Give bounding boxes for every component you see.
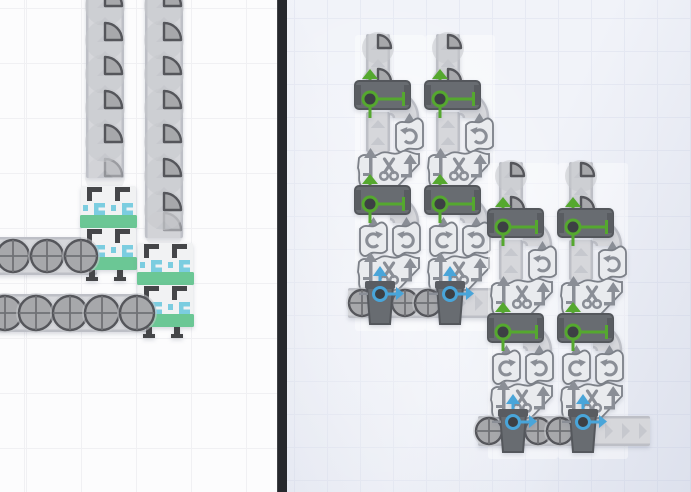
shape-item-quarter	[143, 189, 185, 231]
output-port-machine[interactable]	[560, 392, 610, 456]
quarter-shape	[164, 159, 181, 176]
output-port-machine[interactable]	[357, 264, 407, 328]
green-dial-icon	[433, 197, 447, 211]
quarter-shape	[105, 125, 122, 142]
blue-dial-icon	[577, 416, 590, 429]
shape-item-quarter	[564, 159, 598, 193]
quarter-shape	[105, 23, 122, 40]
green-dial-icon	[496, 220, 510, 234]
green-dial-icon	[566, 325, 580, 339]
belt-reader-machine[interactable]	[424, 67, 482, 121]
shape-item-circle	[116, 292, 158, 334]
game-screenshot	[0, 0, 691, 492]
quarter-shape	[164, 91, 181, 108]
quarter-shape	[164, 193, 181, 210]
blue-dial-icon	[507, 416, 520, 429]
shape-item-quarter	[361, 31, 395, 65]
shape-item-quarter	[494, 159, 528, 193]
quarter-shape	[164, 125, 181, 142]
output-port-machine[interactable]	[490, 392, 540, 456]
output-port-machine[interactable]	[427, 264, 477, 328]
blue-dial-icon	[444, 288, 457, 301]
belt-reader-machine[interactable]	[354, 67, 412, 121]
quarter-shape	[164, 57, 181, 74]
belt-reader-machine[interactable]	[487, 300, 545, 354]
panel-divider	[277, 0, 287, 492]
shape-item-quarter	[431, 31, 465, 65]
quarter-shape	[105, 91, 122, 108]
belt-reader-machine[interactable]	[424, 172, 482, 226]
belt-reader-machine[interactable]	[557, 195, 615, 249]
green-dial-icon	[363, 197, 377, 211]
green-dial-icon	[433, 92, 447, 106]
blue-dial-icon	[374, 288, 387, 301]
belt-reader-machine[interactable]	[557, 300, 615, 354]
quarter-shape	[105, 57, 122, 74]
shape-item-quarter	[84, 121, 126, 163]
belt-reader-machine[interactable]	[487, 195, 545, 249]
quarter-shape	[164, 23, 181, 40]
quarter-shape	[105, 0, 122, 6]
green-dial-icon	[566, 220, 580, 234]
belt-reader-machine[interactable]	[354, 172, 412, 226]
shape-item-circle	[61, 236, 101, 276]
quarter-shape	[164, 0, 181, 6]
green-dial-icon	[363, 92, 377, 106]
green-dial-icon	[496, 325, 510, 339]
